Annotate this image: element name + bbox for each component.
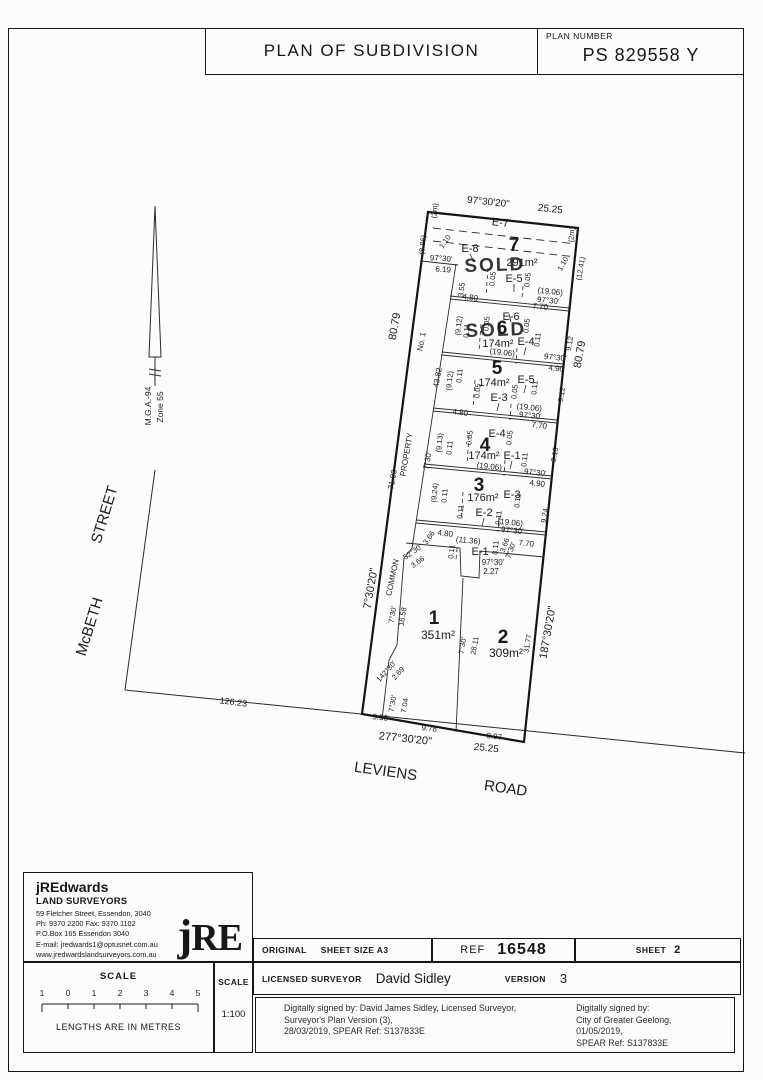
ruler-tick-labels: 1012345 [40,988,201,998]
surveyor-name: David Sidley [376,971,451,986]
company-name: jREdwards [36,879,252,895]
signature-line: City of Greater Geelong, [576,1015,671,1027]
signature-line: SPEAR Ref: S137833E [576,1038,671,1050]
signature-line: 01/05/2019, [576,1026,671,1038]
plan-of-subdivision-page: { "title_block": { "title": "PLAN OF SUB… [0,0,763,1080]
ruler-tick-label: 0 [66,988,71,998]
sheet-size-label: SHEET SIZE A3 [321,945,389,955]
licensed-surveyor-label: LICENSED SURVEYOR [262,974,362,984]
digital-signature-box: Digitally signed by: David James Sidley,… [255,997,735,1053]
version-value: 3 [560,971,567,986]
sheet-value: 2 [674,944,680,956]
plan-number-value: PS 829558 Y [546,45,736,66]
scale-bar-caption: LENGTHS ARE IN METRES [24,1022,213,1032]
scale-ratio-box: SCALE 1:100 [214,962,253,1053]
ruler-tick-label: 4 [170,988,175,998]
version-label: VERSION [505,974,546,984]
ref-value: 16548 [497,941,547,959]
page-title: PLAN OF SUBDIVISION [264,41,480,61]
scale-ratio-label: SCALE [215,977,252,987]
ruler-tick-label: 3 [144,988,149,998]
jre-logo-re: RE [191,917,242,959]
signature-line: Digitally signed by: [576,1003,671,1015]
jre-logo-j: j [178,911,192,960]
ruler-tick-label: 1 [92,988,97,998]
scale-bar-title: SCALE [24,971,213,982]
original-sheet-size-box: ORIGINAL SHEET SIZE A3 [253,938,432,962]
company-subtitle: LAND SURVEYORS [36,896,252,907]
scale-ruler: 1012345 [24,982,215,1016]
scale-bar-box: SCALE 1012345 LENGTHS ARE IN METRES [23,962,214,1053]
original-label: ORIGINAL [262,945,307,955]
signature-surveyor: Digitally signed by: David James Sidley,… [284,1003,516,1052]
signature-line: Digitally signed by: David James Sidley,… [284,1003,516,1015]
signature-council: Digitally signed by: City of Greater Gee… [576,1003,671,1052]
ruler-tick-label: 2 [118,988,123,998]
signature-line: Surveyor's Plan Version (3), [284,1015,516,1027]
ref-label: REF [460,944,485,956]
ref-box: REF 16548 [432,938,575,962]
plan-number-label: PLAN NUMBER [546,31,736,41]
ruler-tick-label: 5 [196,988,201,998]
title-box: PLAN OF SUBDIVISION [205,28,537,75]
jre-logo: jRE [178,918,242,953]
surveyor-company-box: jREdwards LAND SURVEYORS 59 Fletcher Str… [23,872,253,962]
ruler-tick-label: 1 [40,988,45,998]
plan-number-box: PLAN NUMBER PS 829558 Y [537,28,744,75]
signature-line: 28/03/2019, SPEAR Ref: S137833E [284,1026,516,1038]
sheet-number-box: SHEET 2 [575,938,741,962]
scale-ratio-value: 1:100 [215,1009,252,1020]
licensed-surveyor-row: LICENSED SURVEYOR David Sidley VERSION 3 [253,962,741,995]
sheet-label: SHEET [636,945,666,955]
